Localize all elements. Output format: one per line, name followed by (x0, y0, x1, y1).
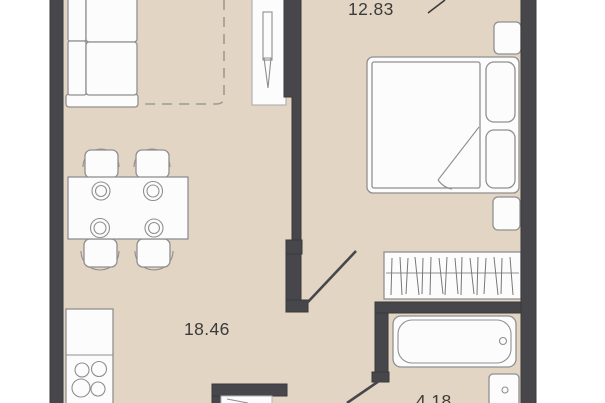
wall-left (50, 0, 63, 403)
wall-center-foot (286, 300, 308, 312)
pillow (486, 130, 515, 188)
wash-basin (489, 374, 519, 403)
doorway-bottom (221, 396, 272, 403)
wall-bathroom-top (375, 302, 521, 313)
wall-right (521, 0, 536, 403)
wall-center-notch (286, 240, 302, 254)
dining-table (68, 177, 188, 239)
wall-bottom-center (212, 384, 287, 396)
floor-plan: 12.83 18.46 4.18 (0, 0, 605, 403)
sofa (66, 0, 138, 107)
wall-bottom-stub (212, 396, 221, 403)
living-area-label: 18.46 (184, 320, 230, 339)
bathroom-area-label: 4.18 (416, 392, 452, 403)
bathtub (393, 316, 516, 367)
doorway-top (252, 0, 286, 105)
pillow (486, 62, 515, 122)
wardrobe (384, 252, 521, 299)
wall-bathroom-foot (372, 372, 389, 382)
bedroom-area-label: 12.83 (348, 0, 394, 19)
mattress (372, 62, 480, 188)
nightstand-bottom (493, 197, 520, 230)
nightstand-top (494, 22, 521, 54)
wall-bathroom-left (375, 313, 388, 372)
floor-plan-svg (0, 0, 605, 403)
kitchen-counter (66, 309, 113, 403)
